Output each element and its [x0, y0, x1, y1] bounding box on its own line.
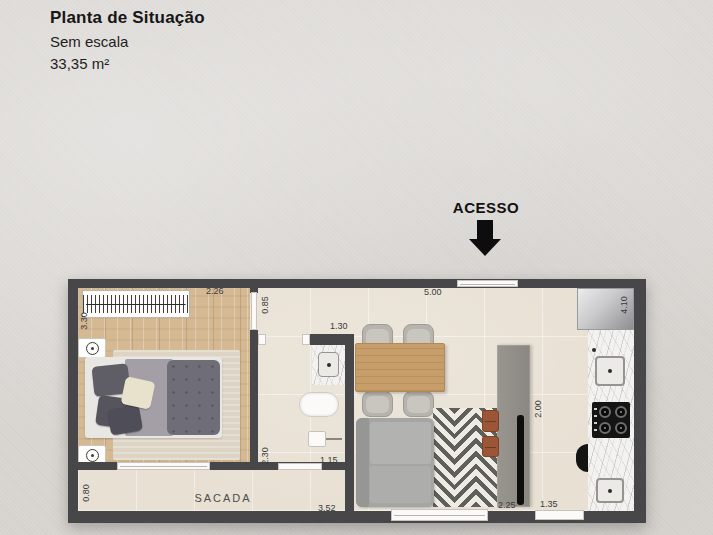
dimension-label: 2.00: [533, 396, 543, 422]
ceiling-light-icon: [78, 338, 106, 358]
dimension-label: 2.26: [206, 286, 224, 296]
kitchen-island: [497, 345, 530, 507]
bed: [85, 357, 222, 438]
wall-right: [634, 279, 646, 523]
dimension-label: 3.30: [79, 308, 89, 334]
bedroom-door: [251, 292, 257, 330]
dining-chair: [403, 391, 434, 417]
bathroom-window: [278, 463, 322, 470]
wall-bathroom: [345, 334, 354, 511]
dimension-label: 1.35: [540, 499, 558, 509]
bed-pillow: [107, 404, 143, 435]
wall-bedroom: [250, 330, 258, 462]
bar-stool: [482, 436, 499, 457]
toilet: [326, 438, 342, 440]
faucet-icon: [592, 348, 596, 352]
bar-stool: [482, 410, 499, 432]
plan-title-block: Planta de Situação Sem escala 33,35 m²: [50, 8, 205, 72]
bed-duvet: [167, 360, 220, 435]
dimension-label: 1.30: [330, 321, 348, 331]
oven: [596, 478, 624, 503]
bed-pillow: [120, 376, 155, 410]
cooktop: [592, 402, 630, 438]
dining-chair: [362, 391, 393, 417]
living-window: [391, 509, 488, 521]
dimension-label: 3.52: [318, 503, 336, 513]
kitchen-sink: [595, 356, 625, 386]
dining-table: [355, 343, 445, 392]
wall-left: [68, 279, 78, 523]
bathroom-sink: [318, 352, 339, 377]
dimension-label: 0.85: [260, 292, 270, 318]
wall-top: [68, 279, 646, 288]
balcony-door: [117, 462, 210, 470]
toilet: [308, 431, 326, 447]
page-title: Planta de Situação: [50, 8, 205, 28]
sofa: [356, 418, 434, 507]
dimension-label: 4.10: [619, 292, 629, 318]
kitchen-window: [535, 510, 584, 520]
dimension-label: 5.00: [424, 287, 442, 297]
access-arrow-icon: [477, 220, 493, 239]
entrance-door: [457, 280, 518, 287]
dimension-label: 2.30: [260, 443, 270, 469]
balcony-label: SACADA: [188, 492, 258, 504]
area-value: 33,35 m²: [50, 55, 205, 72]
tv: [517, 415, 524, 505]
scale-note: Sem escala: [50, 33, 205, 50]
wardrobe: [82, 290, 190, 318]
bathroom-door: [258, 334, 266, 345]
dimension-label: 2.25: [498, 500, 516, 510]
dimension-label: 0.80: [81, 480, 91, 506]
bathroom-door: [302, 334, 310, 345]
access-label: ACESSO: [440, 199, 532, 216]
access-arrow-icon: [469, 239, 501, 256]
bathtub: [299, 392, 339, 417]
dimension-label: 1.15: [320, 455, 338, 465]
floor-plan: 2.26 3.30 0.85 1.30 5.00 4.10 2.30 1.15 …: [68, 279, 646, 523]
